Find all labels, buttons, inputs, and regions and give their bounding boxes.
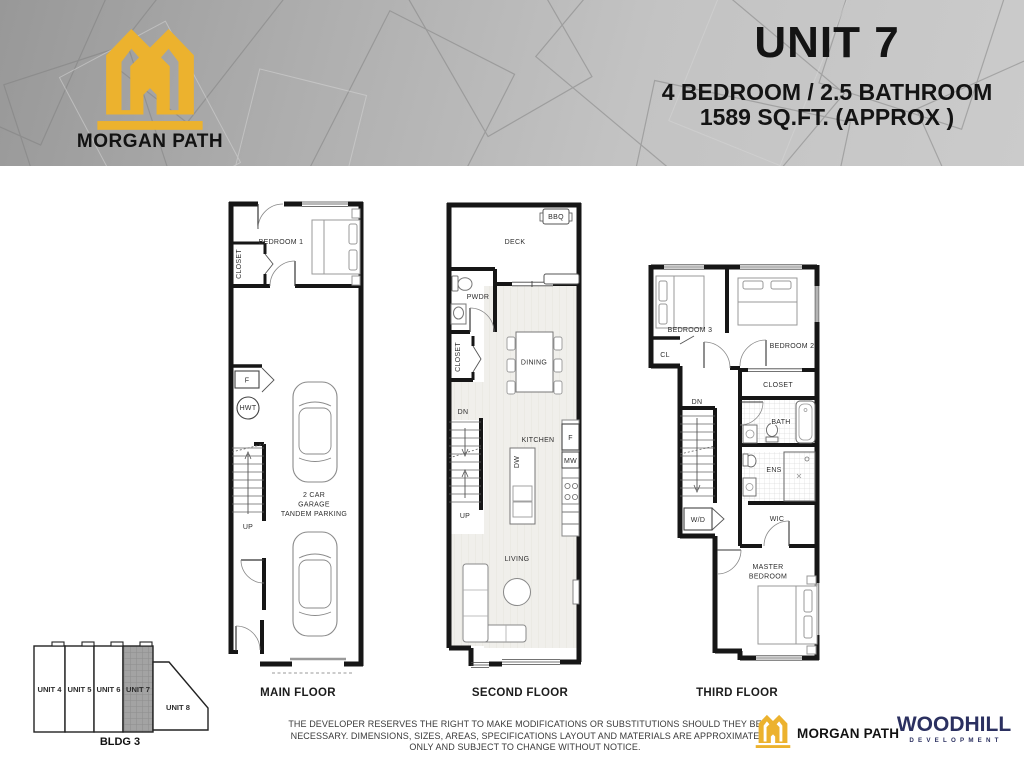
- stairs-down-icon: [680, 416, 715, 496]
- label-dn: DN: [692, 399, 703, 406]
- third-floor-plan: BEDROOM 3 CL BEDROOM 2 CLOSET BATH DN EN…: [644, 258, 824, 670]
- label-hwt: HWT: [240, 405, 257, 412]
- developer-name: WOODHILL: [891, 714, 1017, 736]
- building-label: BLDG 3: [50, 736, 190, 748]
- room-label-cl: CL: [660, 352, 670, 359]
- toilet-icon: [452, 276, 472, 291]
- room-label-master-1: MASTER: [753, 564, 784, 571]
- third-floor-label: THIRD FLOOR: [667, 687, 807, 699]
- room-label-master-2: BEDROOM: [749, 574, 787, 581]
- toilet-icon: [766, 424, 778, 443]
- disclaimer-line-2: NECESSARY. DIMENSIONS, SIZES, AREAS, SPE…: [291, 731, 760, 741]
- sink-icon: [743, 478, 756, 496]
- label-dishwasher: DW: [514, 456, 521, 468]
- morgan-path-logo-icon: [90, 18, 210, 132]
- room-label-bedroom1: BEDROOM 1: [259, 239, 304, 246]
- brand-wordmark: MORGAN PATH: [40, 131, 260, 153]
- label-microwave: MW: [564, 458, 577, 465]
- unit-title: UNIT 7: [630, 20, 1024, 66]
- ottoman-icon: [504, 579, 531, 606]
- room-label-closet: CLOSET: [763, 382, 793, 389]
- label-up: UP: [243, 524, 253, 531]
- header-band: MORGAN PATH UNIT 7 4 BEDROOM / 2.5 BATHR…: [0, 0, 1024, 166]
- label-up: UP: [460, 513, 470, 520]
- morgan-path-logo-icon: [755, 711, 791, 749]
- brochure-page: MORGAN PATH UNIT 7 4 BEDROOM / 2.5 BATHR…: [0, 0, 1024, 768]
- bed-icon: [758, 576, 817, 654]
- main-floor-label: MAIN FLOOR: [228, 687, 368, 699]
- room-label-pwdr: PWDR: [467, 294, 490, 301]
- second-floor-plan: DECK BBQ PWDR CLOSET DINING DN UP KITCHE…: [440, 196, 590, 678]
- disclaimer-line-1: THE DEVELOPER RESERVES THE RIGHT TO MAKE…: [288, 719, 761, 729]
- room-label-dining: DINING: [521, 360, 547, 367]
- deck-bench: [544, 274, 579, 284]
- room-label-bath: BATH: [771, 419, 790, 426]
- tv-unit-icon: [573, 580, 579, 604]
- label-garage-2: GARAGE: [298, 502, 330, 509]
- stairs-up-icon: [232, 444, 264, 514]
- unit-4-label: UNIT 4: [37, 685, 62, 694]
- room-label-living: LIVING: [505, 556, 530, 563]
- disclaimer-line-3: ONLY AND SUBJECT TO CHANGE WITHOUT NOTIC…: [409, 742, 640, 752]
- unit-8-label: UNIT 8: [166, 703, 190, 712]
- stairs-icon: [449, 422, 481, 502]
- sink-icon: [743, 425, 757, 443]
- room-label-wic: WIC: [770, 516, 785, 523]
- developer-subtitle: DEVELOPMENT: [895, 737, 1017, 744]
- bed-icon: [312, 209, 360, 285]
- unit-5-label: UNIT 5: [67, 685, 92, 694]
- unit-6-label: UNIT 6: [96, 685, 120, 694]
- label-bbq: BBQ: [548, 214, 564, 221]
- unit-title-block: UNIT 7 4 BEDROOM / 2.5 BATHROOM 1589 SQ.…: [630, 20, 1024, 130]
- label-fridge: F: [568, 435, 573, 442]
- label-garage-3: TANDEM PARKING: [281, 511, 347, 518]
- room-label-deck: DECK: [505, 239, 526, 246]
- disclaimer-text: THE DEVELOPER RESERVES THE RIGHT TO MAKE…: [285, 719, 765, 754]
- room-label-closet: CLOSET: [455, 342, 462, 372]
- developer-logo: WOODHILL DEVELOPMENT: [891, 714, 1017, 744]
- second-floor-label: SECOND FLOOR: [450, 687, 590, 699]
- label-furnace: F: [245, 378, 250, 385]
- building-key-diagram: UNIT 4 UNIT 5 UNIT 6 UNIT 7 UNIT 8: [28, 640, 220, 736]
- shower-icon: [784, 452, 815, 501]
- sink-icon: [451, 304, 466, 324]
- label-dn: DN: [458, 409, 469, 416]
- bed-icon: [738, 278, 797, 325]
- car-icon: [293, 532, 337, 636]
- unit-area: 1589 SQ.FT. (APPROX ): [630, 105, 1024, 130]
- car-icon: [293, 382, 337, 482]
- unit-specs: 4 BEDROOM / 2.5 BATHROOM: [630, 80, 1024, 105]
- bathtub-icon: [796, 401, 815, 443]
- toilet-icon: [743, 454, 756, 467]
- room-label-kitchen: KITCHEN: [522, 437, 555, 444]
- brand-wordmark: MORGAN PATH: [797, 726, 899, 741]
- room-label-bedroom2: BEDROOM 2: [770, 343, 815, 350]
- room-label-closet: CLOSET: [236, 249, 243, 279]
- brand-logo-block: MORGAN PATH: [40, 10, 260, 160]
- label-garage-1: 2 CAR: [303, 492, 325, 499]
- window: [471, 660, 560, 668]
- label-washer-dryer: W/D: [691, 517, 706, 524]
- main-floor-plan: BEDROOM 1 CLOSET F HWT UP 2 CAR GARAGE T…: [224, 196, 366, 678]
- room-label-ens: ENS: [766, 467, 781, 474]
- unit-8-box: [153, 662, 208, 730]
- window: [302, 201, 348, 207]
- bed-icon: [656, 276, 704, 328]
- room-label-bedroom3: BEDROOM 3: [668, 327, 713, 334]
- unit-7-label: UNIT 7: [126, 685, 150, 694]
